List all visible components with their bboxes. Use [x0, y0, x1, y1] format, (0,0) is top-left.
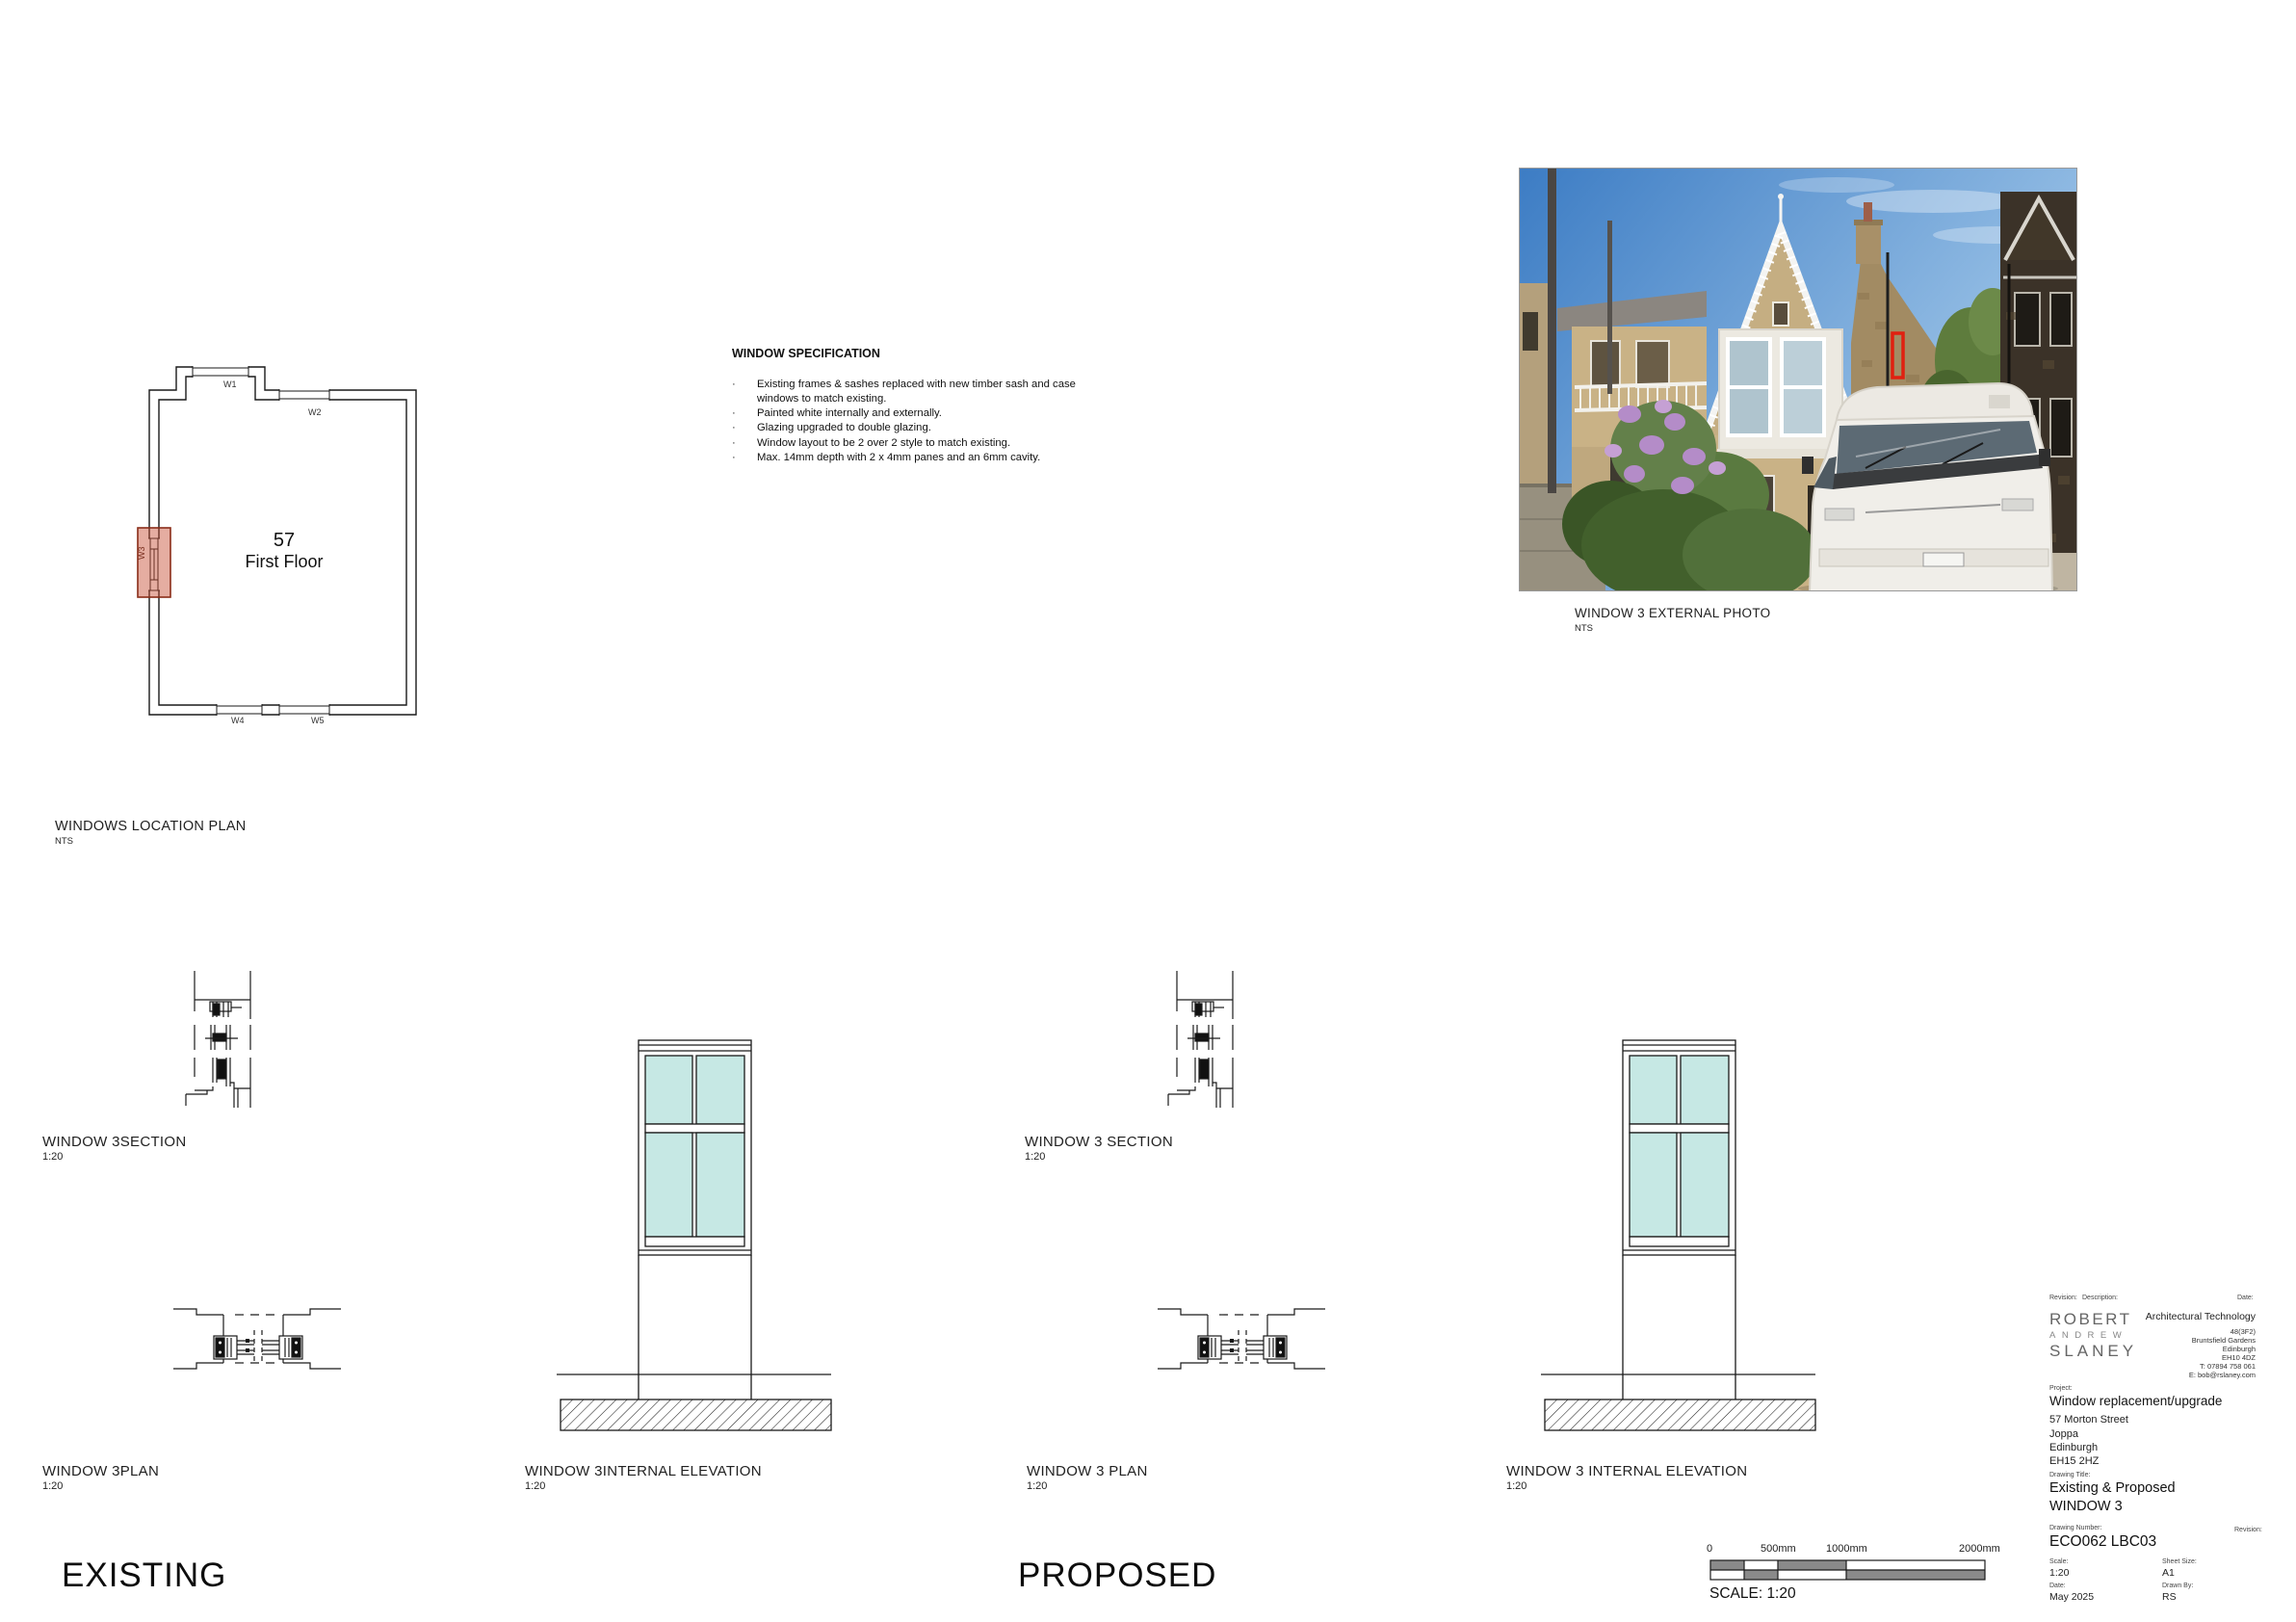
firm-name-line3: SLANEY [2049, 1342, 2137, 1361]
spec-item-text: Painted white internally and externally. [757, 406, 1115, 421]
spec-bullet: · [732, 378, 757, 406]
firm-address-line: EH10 4DZ [2222, 1353, 2256, 1362]
proposed-elevation-scale: 1:20 [1506, 1480, 1526, 1492]
sheet-size-label: Sheet Size: [2162, 1558, 2197, 1565]
existing-plan-drawing [171, 1295, 345, 1382]
proposed-elevation-title: WINDOW 3 INTERNAL ELEVATION [1506, 1463, 1747, 1479]
existing-plan-scale: 1:20 [42, 1480, 63, 1492]
proposed-plan-drawing [1156, 1295, 1329, 1382]
plan-label-w2: W2 [308, 407, 322, 417]
existing-elevation-title: WINDOW 3INTERNAL ELEVATION [525, 1463, 762, 1479]
spec-item: · Painted white internally and externall… [732, 406, 1117, 421]
plan-label-w3: W3 [137, 547, 146, 561]
drawing-sheet: W1 W2 W3 W4 W5 57 First Floor WINDOWS LO… [0, 0, 2296, 1622]
plan-window-w2 [279, 389, 329, 401]
description-header-label: Description: [2082, 1295, 2118, 1301]
scale-bar-tick-0: 0 [1707, 1543, 1712, 1555]
w3-highlight-box [138, 528, 170, 597]
project-address-line: Joppa [2049, 1428, 2078, 1440]
spec-bullet: · [732, 451, 757, 465]
project-name: Window replacement/upgrade [2049, 1394, 2222, 1408]
proposed-section-drawing [1161, 963, 1247, 1117]
date-label: Date: [2049, 1583, 2066, 1589]
windows-location-plan-drawing: W1 W2 W3 W4 W5 57 First Floor [135, 361, 424, 727]
plan-label-w5: W5 [311, 716, 325, 725]
spec-item-text: Glazing upgraded to double glazing. [757, 421, 1115, 435]
proposed-heading: PROPOSED [1018, 1557, 1216, 1595]
proposed-plan-scale: 1:20 [1027, 1480, 1047, 1492]
spec-bullet: · [732, 421, 757, 435]
existing-plan-title: WINDOW 3PLAN [42, 1463, 159, 1479]
firm-discipline: Architectural Technology [2146, 1311, 2256, 1322]
firm-address-line: Bruntsfield Gardens [2192, 1336, 2256, 1345]
proposed-plan-title: WINDOW 3 PLAN [1027, 1463, 1148, 1479]
existing-section-drawing [178, 963, 265, 1117]
revision-label: Revision: [2234, 1527, 2262, 1533]
drawing-title-line1: Existing & Proposed [2049, 1480, 2176, 1496]
firm-address-line: Edinburgh [2223, 1345, 2256, 1353]
sheet-size-value: A1 [2162, 1567, 2175, 1579]
room-number: 57 [274, 530, 295, 551]
existing-section-title: WINDOW 3SECTION [42, 1134, 187, 1150]
plan-window-w1 [193, 366, 248, 378]
firm-phone: T: 07894 758 061 [2200, 1362, 2256, 1371]
date-value: May 2025 [2049, 1591, 2094, 1603]
scale-label: Scale: [2049, 1558, 2068, 1565]
spec-item-text: Max. 14mm depth with 2 x 4mm panes and a… [757, 451, 1115, 465]
existing-elevation-drawing [549, 1031, 838, 1445]
firm-email: E: bob@rslaney.com [2189, 1371, 2256, 1379]
revision-header-label: Revision: [2049, 1295, 2077, 1301]
firm-address-line: 48(3F2) [2231, 1327, 2256, 1336]
drawing-number-label: Drawing Number: [2049, 1525, 2101, 1531]
existing-heading: EXISTING [62, 1557, 226, 1595]
scale-value: 1:20 [2049, 1567, 2069, 1579]
spec-item: · Max. 14mm depth with 2 x 4mm panes and… [732, 451, 1117, 465]
spec-title: WINDOW SPECIFICATION [732, 347, 1117, 360]
title-block: Revision: Description: Date: ROBERT ANDR… [2042, 1291, 2296, 1622]
project-label: Project: [2049, 1385, 2073, 1392]
spec-item: · Glazing upgraded to double glazing. [732, 421, 1117, 435]
photo-caption: WINDOW 3 EXTERNAL PHOTO [1575, 606, 1770, 620]
drawing-title-label: Drawing Title: [2049, 1472, 2090, 1478]
photo-scale: NTS [1575, 623, 1593, 634]
plan-label-w4: W4 [231, 716, 245, 725]
drawing-number: ECO062 LBC03 [2049, 1533, 2156, 1551]
drawn-by-label: Drawn By: [2162, 1583, 2193, 1589]
proposed-elevation-drawing [1533, 1031, 1822, 1445]
scale-bar-tick-1000: 1000mm [1826, 1543, 1867, 1555]
firm-name-line2: ANDREW [2049, 1330, 2127, 1341]
scale-bar-graphic [1709, 1559, 1986, 1581]
spec-item: · Existing frames & sashes replaced with… [732, 378, 1117, 406]
scale-bar-tick-500: 500mm [1761, 1543, 1796, 1555]
spec-item: · Window layout to be 2 over 2 style to … [732, 436, 1117, 451]
photo-van [1798, 383, 2058, 591]
firm-name-line1: ROBERT [2049, 1310, 2132, 1329]
room-name: First Floor [246, 552, 324, 571]
location-plan-scale: NTS [55, 836, 73, 847]
spec-bullet: · [732, 436, 757, 451]
existing-elevation-scale: 1:20 [525, 1480, 545, 1492]
plan-window-w5 [279, 704, 329, 716]
drawn-by-value: RS [2162, 1591, 2177, 1603]
proposed-section-title: WINDOW 3 SECTION [1025, 1134, 1173, 1150]
scale-bar-tick-2000: 2000mm [1959, 1543, 2000, 1555]
location-plan-title: WINDOWS LOCATION PLAN [55, 819, 247, 834]
project-address-line: Edinburgh [2049, 1442, 2098, 1453]
scale-bar: 0 500mm 1000mm 2000mm SCALE: 1:20 [1709, 1543, 1998, 1610]
project-address-line: EH15 2HZ [2049, 1455, 2099, 1467]
spec-item-text: Existing frames & sashes replaced with n… [757, 378, 1115, 406]
project-address-line: 57 Morton Street [2049, 1414, 2128, 1426]
scale-bar-caption: SCALE: 1:20 [1709, 1585, 1796, 1603]
window-specification: WINDOW SPECIFICATION · Existing frames &… [732, 347, 1117, 465]
drawing-title-line2: WINDOW 3 [2049, 1499, 2123, 1514]
proposed-section-scale: 1:20 [1025, 1151, 1045, 1163]
date-header-label: Date: [2237, 1295, 2254, 1301]
spec-item-text: Window layout to be 2 over 2 style to ma… [757, 436, 1115, 451]
spec-bullet: · [732, 406, 757, 421]
window-3-external-photo [1519, 168, 2077, 591]
plan-window-w4 [217, 704, 262, 716]
existing-section-scale: 1:20 [42, 1151, 63, 1163]
plan-label-w1: W1 [223, 379, 237, 389]
